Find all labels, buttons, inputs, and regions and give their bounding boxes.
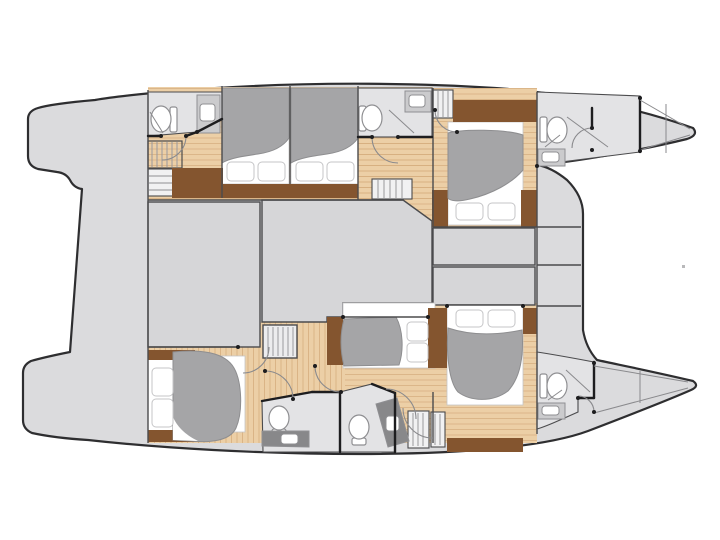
pillow	[327, 162, 354, 181]
pillow	[407, 322, 428, 341]
bed-foot-band	[447, 438, 523, 452]
toilet	[540, 373, 567, 399]
nightstand	[433, 308, 447, 334]
nightstand	[521, 190, 537, 227]
pillow	[407, 343, 428, 362]
sink-basin	[200, 104, 215, 121]
toilet	[359, 105, 382, 131]
sink-basin	[281, 434, 298, 444]
duvet	[173, 351, 241, 442]
catamaran-deck-plan	[0, 0, 720, 540]
sink-basin	[542, 152, 559, 162]
sink-basin	[409, 95, 425, 107]
vanity-cabinet-1	[408, 411, 429, 448]
galley-block-1	[433, 228, 535, 265]
salon-left	[148, 202, 260, 347]
toilet	[540, 117, 567, 143]
pillow	[488, 203, 515, 220]
bed-foot-band	[222, 184, 358, 198]
pillow	[456, 203, 483, 220]
pillow	[456, 310, 483, 327]
pillow	[152, 399, 173, 427]
pillow	[296, 162, 323, 181]
galley-block-2	[433, 267, 535, 305]
image-speck	[682, 265, 685, 268]
pillow	[258, 162, 285, 181]
catamaran-deck-plan-page	[0, 0, 720, 540]
pillow	[152, 368, 173, 396]
sink-basin	[542, 406, 559, 415]
sink-basin	[386, 416, 399, 431]
nightstand	[523, 308, 537, 334]
duvet	[341, 317, 402, 366]
headboard	[453, 100, 537, 122]
pillow	[227, 162, 254, 181]
shelf-cabinet	[148, 169, 173, 196]
pillow	[488, 310, 515, 327]
nightstand	[432, 190, 448, 227]
dark-floor-panel	[172, 168, 223, 198]
toilet	[349, 415, 369, 445]
